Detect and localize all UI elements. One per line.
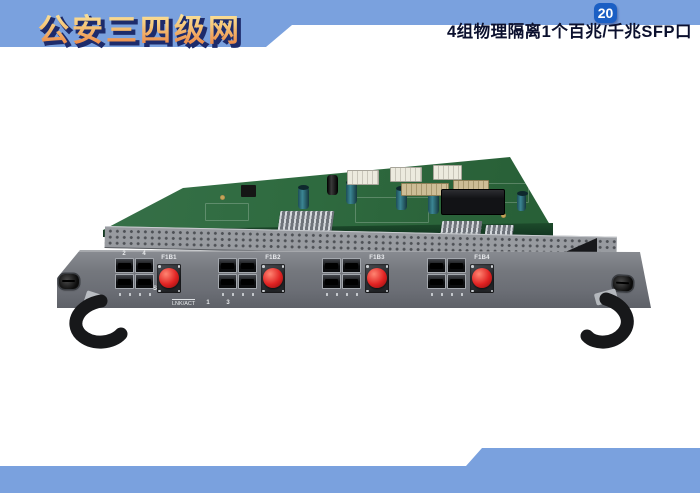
port-number: 3	[223, 300, 233, 306]
sfp-cage	[238, 274, 257, 289]
port-led	[336, 293, 339, 296]
inductor-component	[327, 175, 338, 195]
port-number: 2	[119, 251, 129, 257]
pcb-silkscreen	[355, 197, 429, 223]
heatsink	[278, 211, 335, 231]
port-led	[129, 293, 132, 296]
port-led	[242, 293, 245, 296]
link-activity-label: LNK/ACT	[172, 299, 195, 307]
sfp-cage	[115, 274, 134, 289]
port-led-row	[427, 293, 467, 296]
fiber-coupler-label: F1B4	[470, 255, 494, 261]
sfp-cage	[218, 258, 237, 273]
port-led	[139, 293, 142, 296]
capacitor	[346, 182, 357, 204]
port-led	[252, 293, 255, 296]
port-led	[451, 293, 454, 296]
port-number: 1	[203, 300, 213, 306]
port-led	[326, 293, 329, 296]
chip-component	[241, 185, 256, 197]
port-led	[441, 293, 444, 296]
backplane-connector	[441, 189, 505, 215]
fiber-coupler-label: F1B2	[261, 255, 285, 261]
capacitor	[298, 187, 309, 209]
sfp-cage	[322, 258, 341, 273]
sfp-cage	[218, 274, 237, 289]
sfp-port-group-2	[218, 258, 258, 290]
sfp-port-group-4	[427, 258, 467, 290]
sfp-cage	[342, 274, 361, 289]
captive-screw-left	[59, 274, 79, 289]
sfp-port-group-1	[115, 258, 155, 290]
sfp-cage	[115, 258, 134, 273]
capacitor	[517, 193, 526, 211]
port-led	[346, 293, 349, 296]
port-led	[461, 293, 464, 296]
sfp-cage	[447, 258, 466, 273]
sfp-cage	[427, 258, 446, 273]
fiber-coupler-4	[470, 264, 494, 293]
port-led	[232, 293, 235, 296]
fiber-coupler-1	[157, 264, 181, 293]
footer-ribbon	[0, 448, 700, 493]
pin-header-connector	[433, 165, 462, 180]
port-led	[119, 293, 122, 296]
port-led	[356, 293, 359, 296]
pin-header-connector	[390, 167, 422, 182]
port-led	[431, 293, 434, 296]
port-led-row	[218, 293, 258, 296]
pin-header-connector	[347, 170, 379, 185]
fiber-coupler-label: F1B3	[365, 255, 389, 261]
sfp-cage	[447, 274, 466, 289]
sfp-cage	[135, 258, 154, 273]
footer-caption: 4组物理隔离1个百兆/千兆SFP口	[447, 18, 692, 42]
sfp-port-group-3	[322, 258, 362, 290]
line-card-photo: SYS LNK/ACT 2 4 1 3 F1B1	[55, 125, 655, 365]
sfp-cage	[342, 258, 361, 273]
fiber-coupler-2	[261, 264, 285, 293]
fiber-coupler-label: F1B1	[157, 255, 181, 261]
front-panel: SYS LNK/ACT 2 4 1 3 F1B1	[57, 250, 651, 308]
port-led	[222, 293, 225, 296]
slide: { "colors": { "ribbon_blue": "#7aa1de", …	[0, 0, 700, 493]
port-number: 4	[139, 251, 149, 257]
pcb-silkscreen	[205, 203, 249, 221]
port-led-row	[322, 293, 362, 296]
sfp-cage	[238, 258, 257, 273]
page-title-text: 公安三四级网	[38, 5, 242, 50]
port-led-row	[115, 293, 155, 296]
port-led	[149, 293, 152, 296]
sfp-cage	[322, 274, 341, 289]
fiber-coupler-3	[365, 264, 389, 293]
sfp-cage	[135, 274, 154, 289]
captive-screw-right	[613, 275, 634, 291]
pcb-mount-hole	[220, 195, 225, 200]
sfp-cage	[427, 274, 446, 289]
